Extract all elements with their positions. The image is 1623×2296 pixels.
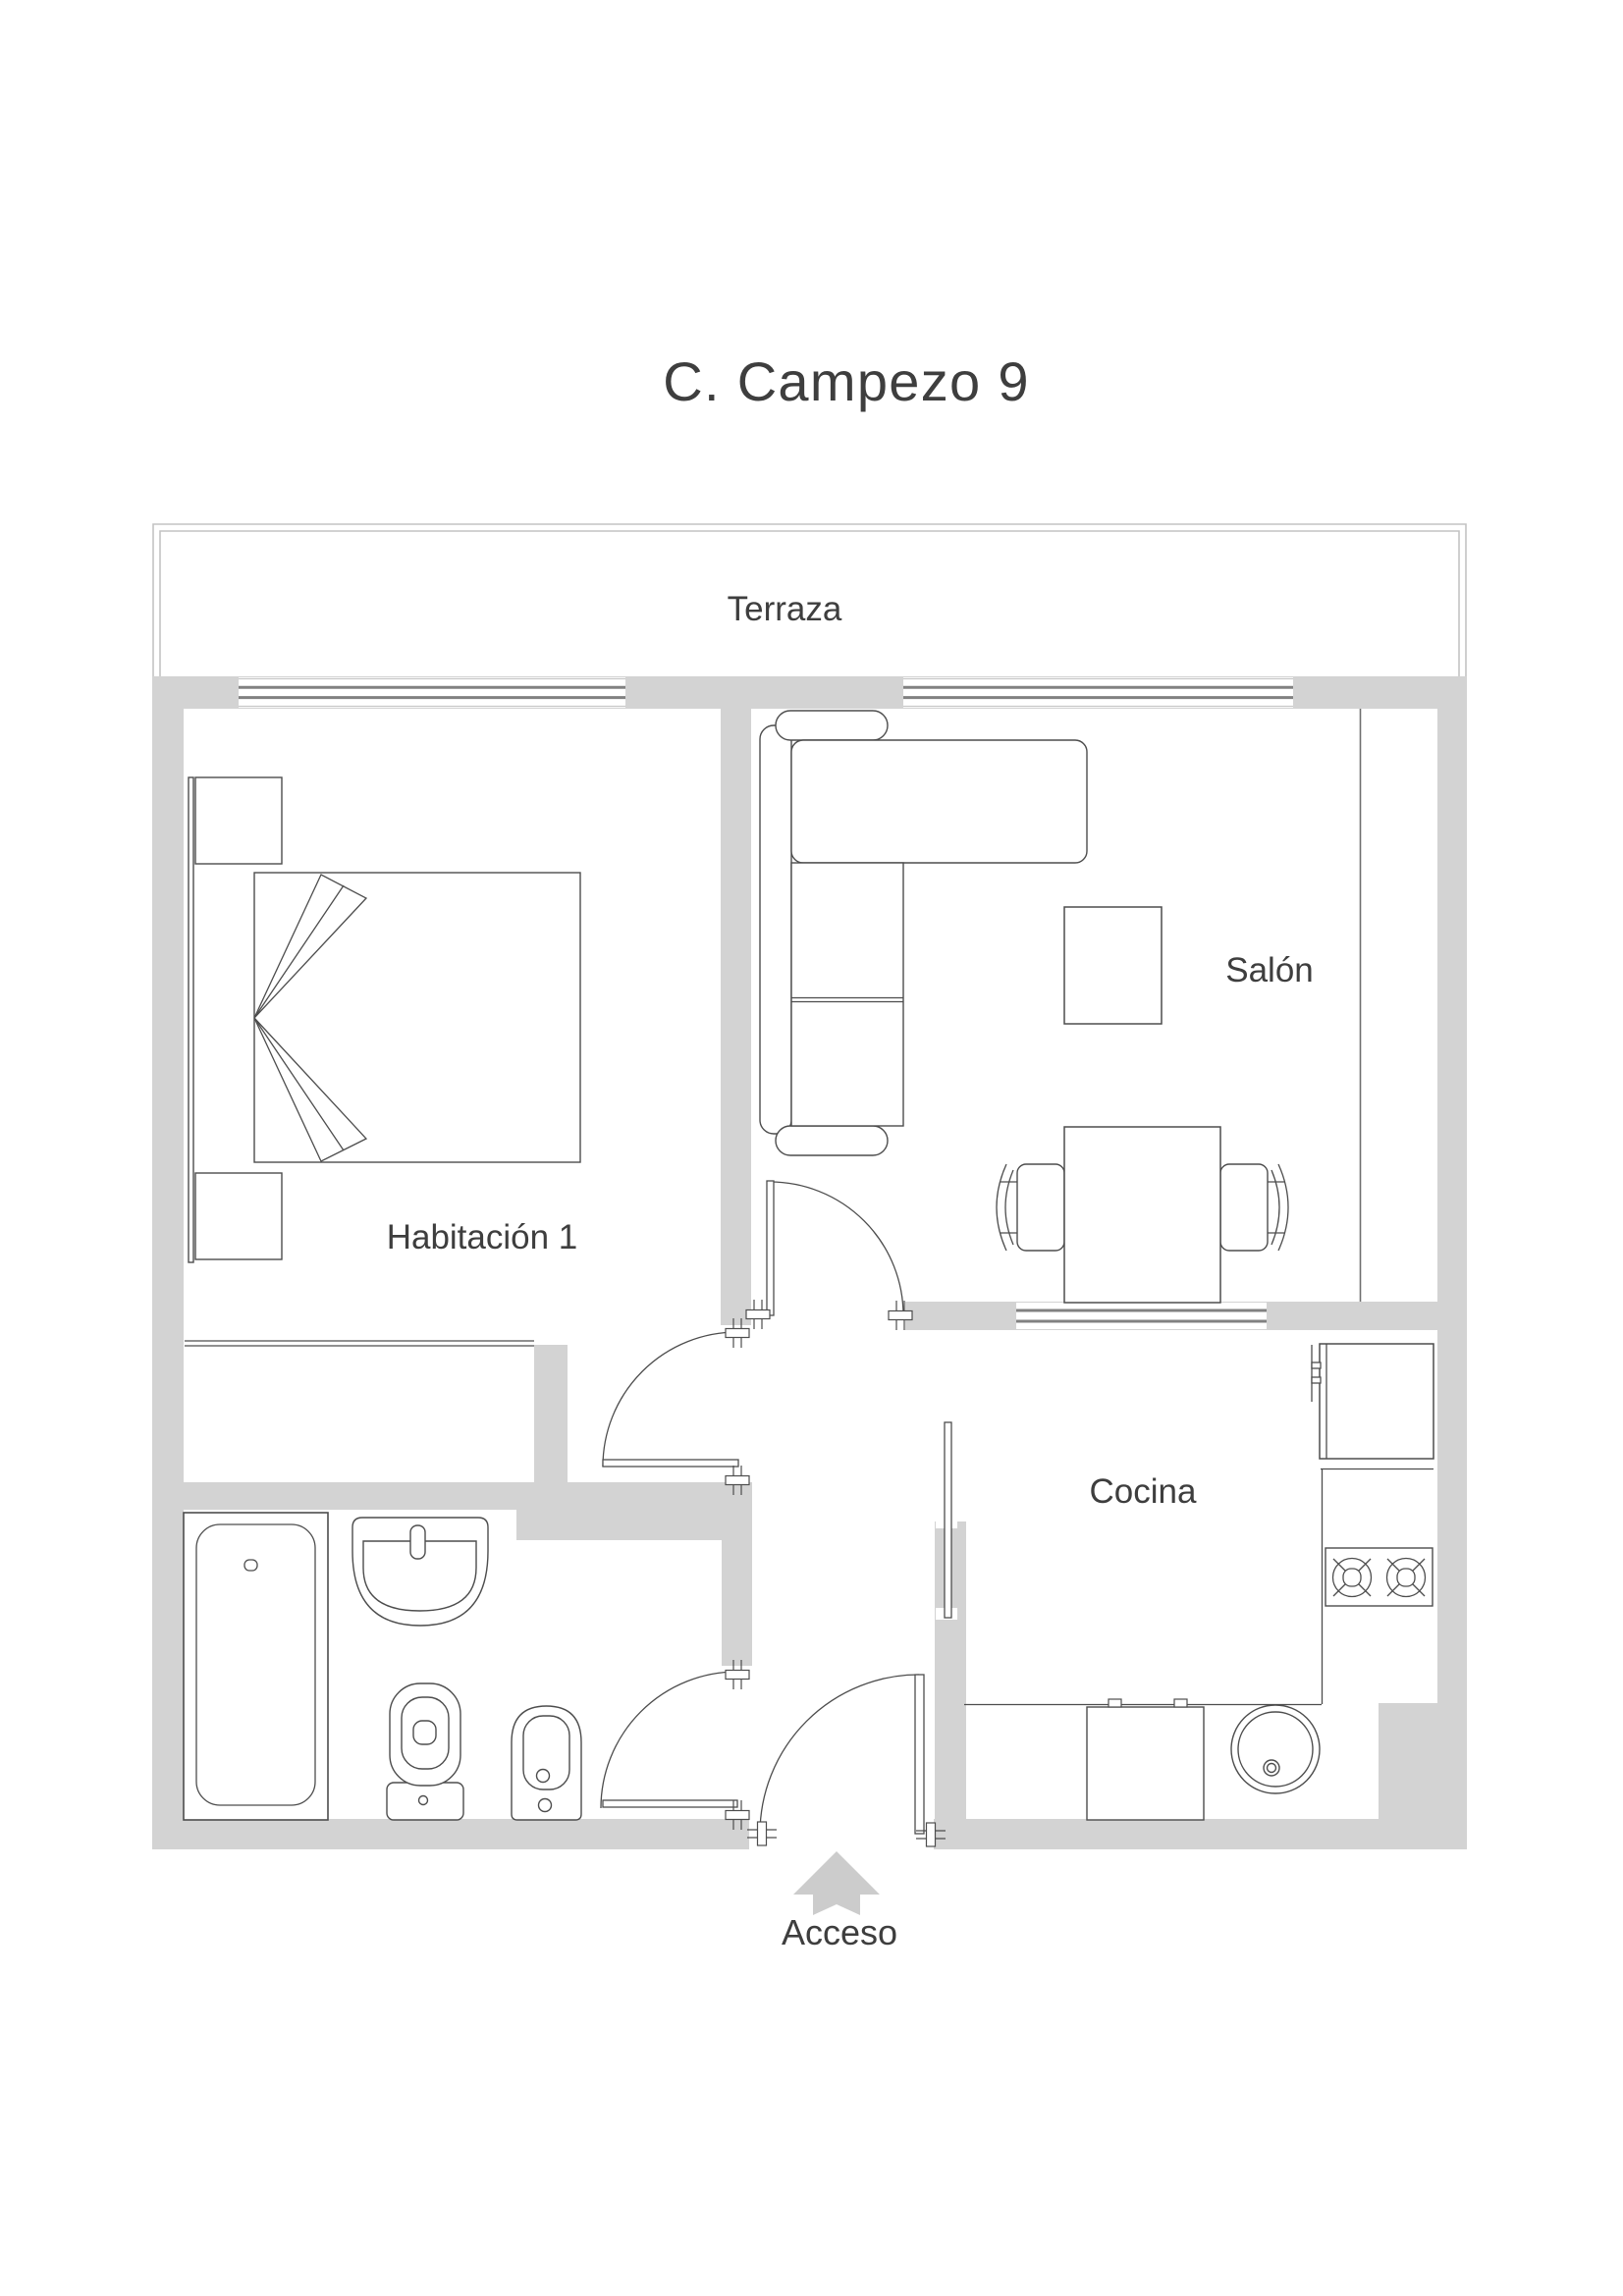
- svg-text:Acceso: Acceso: [782, 1912, 897, 1952]
- svg-text:Terraza: Terraza: [728, 590, 842, 628]
- svg-text:Cocina: Cocina: [1090, 1472, 1197, 1511]
- svg-text:Salón: Salón: [1225, 951, 1314, 989]
- svg-text:C. Campezo 9: C. Campezo 9: [663, 350, 1030, 412]
- svg-text:Habitación 1: Habitación 1: [387, 1218, 578, 1256]
